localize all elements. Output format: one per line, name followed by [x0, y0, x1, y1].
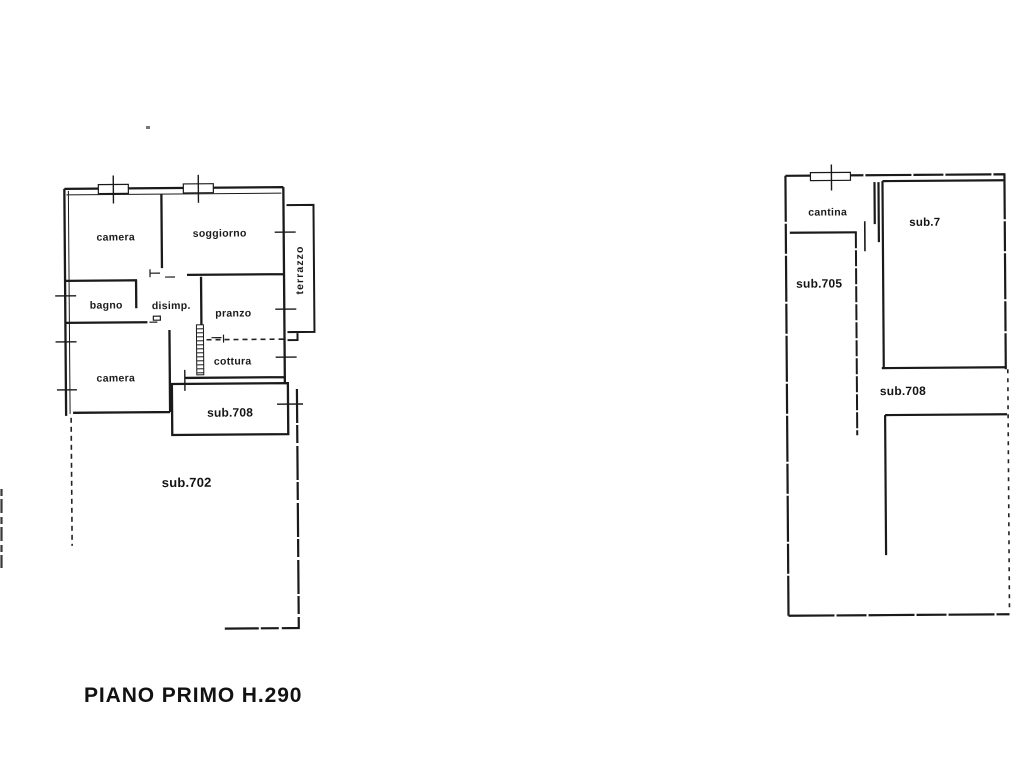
room-label-cottura: cottura	[214, 355, 252, 367]
left-plan-dashed-walls	[71, 339, 287, 546]
room-label-terrazzo: terrazzo	[294, 245, 306, 294]
room-label-bagno: bagno	[90, 299, 123, 311]
floor-title: PIANO PRIMO H.290	[84, 684, 302, 708]
room-label-sub702: sub.702	[162, 475, 212, 490]
wall-opening-ticks	[55, 232, 303, 406]
right-floor-plan: cantina sub.7 sub.705 sub.708	[785, 163, 1009, 616]
scan-dot-artifact	[146, 126, 150, 129]
right-plan-inner-walls	[789, 180, 1008, 555]
floorplan-drawing: camera soggiorno bagno disimp. pranzo co…	[0, 0, 1030, 768]
room-label-sub708: sub.708	[207, 405, 253, 419]
right-plan-outer-dashed-edge	[1008, 369, 1010, 612]
room-label-cantina: cantina	[808, 206, 847, 218]
left-floor-plan: camera soggiorno bagno disimp. pranzo co…	[54, 174, 317, 630]
room-label-sub7: sub.7	[909, 217, 940, 229]
scanned-floorplan-page: camera soggiorno bagno disimp. pranzo co…	[0, 0, 1030, 768]
room-label-pranzo: pranzo	[215, 307, 251, 319]
room-label-disimpegno: disimp.	[152, 300, 191, 312]
room-label-soggiorno: soggiorno	[193, 227, 247, 239]
room-label-sub708-b: sub.708	[880, 384, 926, 398]
room-label-camera-1: camera	[96, 231, 135, 243]
right-plan-corridor-wall	[856, 232, 857, 435]
room-label-sub705: sub.705	[796, 276, 842, 290]
hatched-wall-section	[196, 325, 203, 375]
room-label-camera-2: camera	[96, 372, 135, 384]
